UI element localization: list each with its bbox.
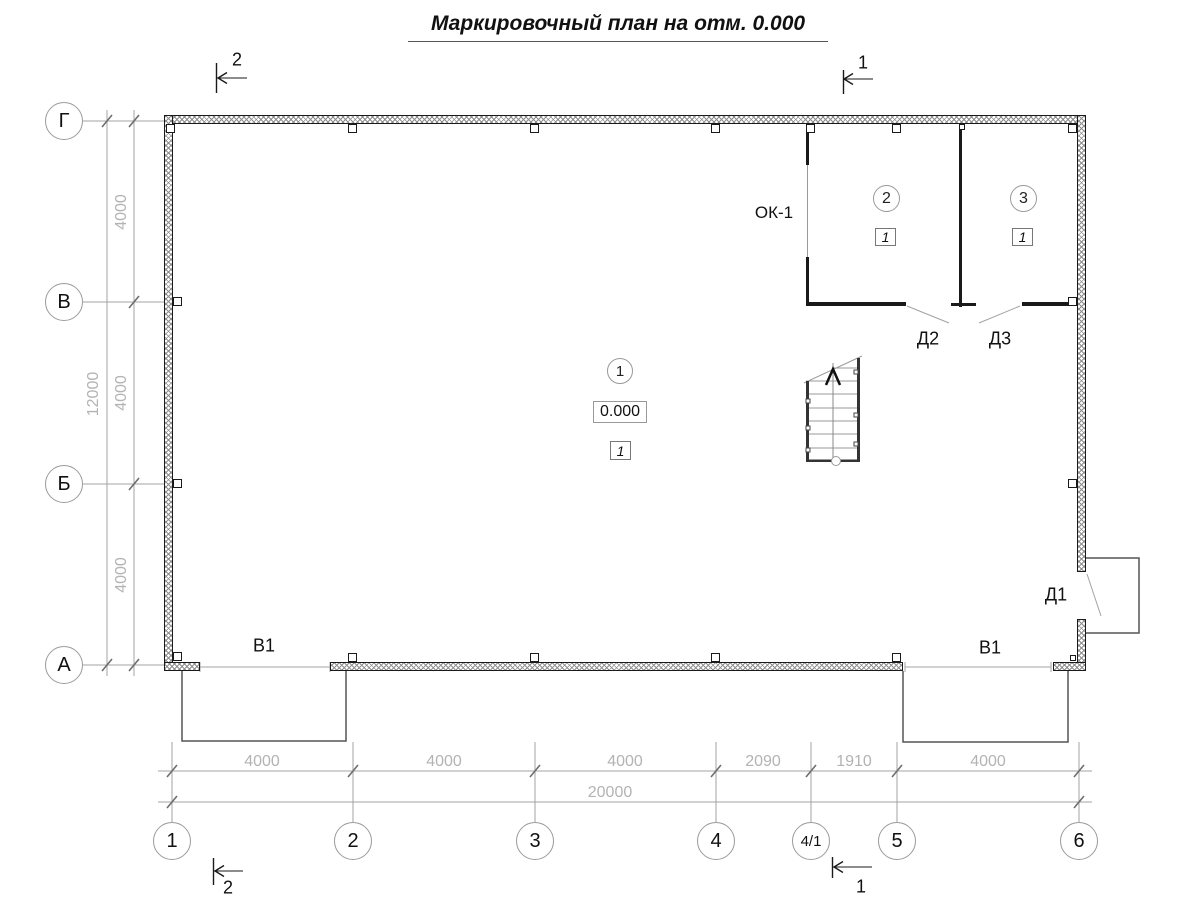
axis-circle-2: 2: [334, 822, 372, 860]
dim-bottom-4000-1: 4000: [244, 753, 280, 771]
pilaster: [1070, 655, 1076, 661]
pilaster: [530, 653, 539, 662]
room-marker-hall: 1: [607, 358, 633, 384]
label-gate-b1-left: В1: [253, 636, 275, 657]
axis-circle-3: 3: [516, 822, 554, 860]
wall-top: [164, 115, 1086, 124]
axis-circle-1: 1: [153, 822, 191, 860]
pilaster: [530, 124, 539, 133]
axis-circle-4-1: 4/1: [792, 822, 830, 860]
pilaster: [892, 653, 901, 662]
pilaster: [711, 653, 720, 662]
section-label-bottom-right: 1: [856, 877, 866, 898]
dimension-lines: [107, 110, 1092, 802]
label-door-d2: Д2: [917, 329, 939, 350]
finish-box-room2: 1: [875, 228, 896, 246]
pilaster: [348, 653, 357, 662]
pilaster: [806, 124, 815, 133]
staircase: [804, 356, 862, 466]
dim-bottom-4000-2: 4000: [426, 753, 462, 771]
room-marker-3: 3: [1010, 185, 1037, 212]
label-door-d1: Д1: [1045, 585, 1067, 606]
partition-room2-room3: [959, 124, 962, 307]
wall-bottom-right: [1053, 662, 1086, 671]
axis-circle-a: А: [45, 646, 83, 684]
dim-left-4000-1: 4000: [113, 194, 131, 230]
partition-room2-left-lower: [806, 257, 809, 303]
pilaster: [1068, 297, 1077, 306]
wall-bottom-middle: [330, 662, 903, 671]
window-ok1: [807, 165, 808, 257]
dim-bottom-1910: 1910: [836, 753, 872, 771]
dim-bottom-2090: 2090: [745, 753, 781, 771]
wall-left: [164, 115, 173, 671]
wall-right-upper: [1077, 115, 1086, 572]
door-leader-lines: [907, 306, 1101, 616]
dimension-ticks: [102, 115, 1084, 808]
drawing-title: Маркировочный план на отм. 0.000: [408, 12, 828, 42]
pilaster: [166, 124, 175, 133]
pilaster: [892, 124, 901, 133]
finish-box-room3: 1: [1012, 228, 1033, 246]
dim-bottom-4000-4: 4000: [970, 753, 1006, 771]
room-marker-2: 2: [873, 185, 900, 212]
label-window-ok1: ОК-1: [755, 203, 793, 223]
pilaster: [711, 124, 720, 133]
pilaster: [1068, 124, 1077, 133]
dim-bottom-total-20000: 20000: [588, 784, 633, 802]
finish-box-hall: 1: [610, 441, 631, 460]
pilaster: [173, 652, 182, 661]
drawing-lines: [0, 0, 1200, 900]
section-label-top-left: 2: [232, 50, 242, 71]
axis-circle-4: 4: [697, 822, 735, 860]
partition-axis-b-seg1: [806, 302, 906, 306]
dim-left-4000-3: 4000: [113, 557, 131, 593]
axis-circle-5: 5: [878, 822, 916, 860]
label-gate-b1-right: В1: [979, 638, 1001, 659]
pilaster: [173, 297, 182, 306]
dim-left-total-12000: 12000: [85, 372, 103, 417]
partition-axis-b-seg2: [951, 303, 976, 306]
elevation-box: 0.000: [593, 401, 647, 423]
floor-plan: Маркировочный план на отм. 0.000 Г В Б А…: [0, 0, 1200, 900]
wall-bottom-left: [164, 662, 200, 671]
label-door-d3: Д3: [989, 329, 1011, 350]
pilaster: [959, 124, 965, 130]
section-label-top-right: 1: [858, 53, 868, 74]
pilaster: [173, 479, 182, 488]
axis-circle-b: Б: [45, 465, 83, 503]
pilaster: [348, 124, 357, 133]
axis-connector-lines: [83, 121, 1079, 822]
dim-left-4000-2: 4000: [113, 375, 131, 411]
section-label-bottom-left: 2: [223, 878, 233, 899]
pilaster: [1068, 479, 1077, 488]
dim-bottom-4000-3: 4000: [607, 753, 643, 771]
axis-circle-6: 6: [1060, 822, 1098, 860]
axis-circle-v: В: [45, 283, 83, 321]
axis-circle-g: Г: [45, 102, 83, 140]
